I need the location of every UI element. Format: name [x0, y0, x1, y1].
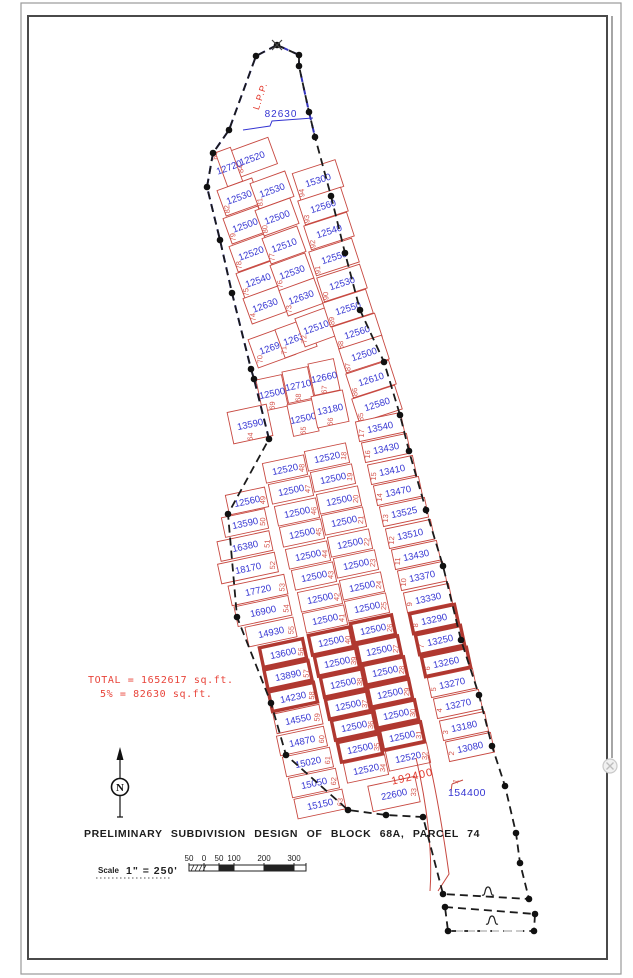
- lot-number: 92: [308, 240, 317, 249]
- lot-number: 61: [323, 756, 332, 765]
- lot-number: 71: [279, 346, 289, 355]
- lot-number: 18: [339, 451, 348, 460]
- boundary-vertex-dot: [204, 184, 211, 191]
- boundary-vertex-dot: [225, 511, 232, 518]
- boundary-vertex-dot: [445, 928, 452, 935]
- lot-number: 59: [312, 713, 321, 722]
- lot-number: 78: [234, 261, 244, 270]
- lot-number: 14: [375, 493, 384, 502]
- lot-number: 3: [441, 730, 450, 735]
- boundary-vertex-dot: [531, 928, 538, 935]
- lpp-label: L.P.P.: [251, 81, 269, 111]
- lot-number: 60: [317, 735, 326, 744]
- lot-number: 19: [345, 472, 354, 481]
- boundary-vertex-dot: [420, 814, 427, 821]
- plat-sheet: 1252084127208312530821250079125207812540…: [0, 0, 633, 978]
- boundary-vertex-dot: [217, 237, 224, 244]
- lot-number: 13: [381, 514, 390, 523]
- lot-number: 81: [255, 198, 265, 207]
- lot-number: 67: [319, 385, 328, 394]
- boundary-vertex-dot: [253, 53, 260, 60]
- scale-tick-label: 100: [227, 854, 241, 863]
- north-letter: N: [116, 782, 124, 794]
- lot-number: 46: [309, 506, 318, 515]
- lot-number: 51: [262, 539, 271, 548]
- lot-number: 76: [275, 280, 285, 289]
- lot-number: 69: [267, 401, 276, 410]
- lot-number: 89: [327, 317, 336, 326]
- lot-66: 1318066: [311, 390, 349, 429]
- lot-number: 93: [302, 215, 311, 224]
- boundary-vertex-dot: [442, 904, 449, 911]
- boundary-vertex-dot: [248, 366, 255, 373]
- lot-number: 42: [332, 592, 341, 601]
- boundary-vertex-dot: [440, 891, 447, 898]
- lot-number: 34: [378, 763, 387, 772]
- lot-number: 55: [286, 626, 295, 635]
- lot-number: 33: [409, 788, 418, 797]
- lot-number: 25: [379, 601, 388, 610]
- lot-number: 50: [258, 517, 267, 526]
- line-break-symbol: [486, 916, 498, 924]
- boundary-vertex-dot: [357, 307, 364, 314]
- boundary-vertex-dot: [296, 63, 303, 70]
- boundary-vertex-dot: [406, 448, 413, 455]
- scale-label: Scale: [98, 866, 119, 875]
- boundary-vertex-dot: [532, 911, 539, 918]
- north-arrow-icon: N: [112, 747, 129, 817]
- lot-number: 9: [405, 602, 414, 607]
- lot-number: 4: [435, 708, 444, 713]
- lot1-number: 1: [451, 778, 461, 784]
- boundary-vertex-dot: [458, 637, 465, 644]
- lot-number: 41: [337, 613, 346, 622]
- lot-number: 44: [320, 549, 329, 558]
- line-break-symbol: [482, 887, 494, 895]
- scale-tick-label: 300: [287, 854, 301, 863]
- lot-number: 49: [258, 496, 267, 505]
- lot-number: 52: [268, 561, 277, 570]
- subdivision-map: 1252084127208312530821250079125207812540…: [0, 0, 633, 978]
- lot-number: 10: [399, 578, 408, 587]
- boundary-vertex-dot: [266, 436, 273, 443]
- lot-number: 91: [313, 266, 322, 275]
- lot-number: 82: [222, 205, 232, 214]
- boundary-vertex-dot: [476, 692, 483, 699]
- lot-number: 22: [362, 537, 371, 546]
- lot-number: 73: [284, 305, 294, 314]
- lot-number: 45: [314, 527, 323, 536]
- boundary-vertex-dot: [381, 359, 388, 366]
- boundary-vertex-dot: [283, 752, 290, 759]
- lot-number: 79: [228, 233, 238, 242]
- total-area-line: TOTAL = 1652617 sq.ft.: [88, 675, 234, 686]
- total-percent-line: 5% = 82630 sq.ft.: [100, 689, 213, 700]
- page-marker-icon: [603, 759, 617, 773]
- lot-number: 24: [374, 580, 383, 589]
- boundary-vertex-dot: [502, 783, 509, 790]
- boundary-vertex-dot: [229, 290, 236, 297]
- lot-number: 11: [393, 557, 402, 565]
- boundary-vertex-dot: [513, 830, 520, 837]
- lot-number: 43: [326, 570, 335, 579]
- boundary-vertex-dot: [345, 807, 352, 814]
- scale-tick-label: 50: [215, 854, 224, 863]
- lot1-area-label: 154400: [448, 787, 486, 799]
- lot-number: 20: [351, 494, 360, 503]
- boundary-vertex-dot: [306, 109, 313, 116]
- apex-x-mark: [272, 40, 282, 50]
- scale-tick-label: 0: [202, 854, 207, 863]
- lot-number: 54: [281, 604, 290, 613]
- boundary-vertex-dot: [517, 860, 524, 867]
- scale-tick-label: 200: [257, 854, 271, 863]
- lot-number: 87: [343, 363, 352, 372]
- lot-number: 47: [303, 484, 312, 493]
- boundary-vertex-dot: [226, 127, 233, 134]
- scale-bar: 50050100200300: [185, 854, 306, 871]
- lot-number: 72: [299, 335, 309, 344]
- lot-number: 5: [429, 687, 438, 692]
- lot-number: 23: [368, 558, 377, 567]
- lot-number: 17: [357, 429, 366, 438]
- scale-tick-label: 50: [185, 854, 194, 863]
- lot-number: 94: [297, 189, 306, 198]
- boundary-vertex-dot: [312, 134, 319, 141]
- lot-number: 2: [447, 751, 456, 756]
- boundary-vertex-dot: [234, 614, 241, 621]
- lot-number: 62: [329, 777, 338, 786]
- lot-number: 65: [298, 426, 307, 435]
- lot-number: 15: [369, 472, 378, 481]
- boundary-vertex-dot: [210, 150, 217, 157]
- lot-number: 86: [350, 388, 359, 397]
- drawing-title: PRELIMINARY SUBDIVISION DESIGN OF BLOCK …: [84, 828, 480, 840]
- boundary-vertex-dot: [526, 896, 533, 903]
- boundary-vertex-dot: [397, 412, 404, 419]
- lot-number: 21: [356, 515, 365, 524]
- lot-number: 12: [387, 536, 396, 545]
- lot-number: 53: [277, 583, 286, 592]
- boundary-vertex-dot: [268, 700, 275, 707]
- lots-layer: 1252084127208312530821250079125207812540…: [208, 137, 495, 819]
- lot-number: 74: [248, 313, 258, 322]
- boundary-vertex-dot: [251, 376, 258, 383]
- boundary-vertex-dot: [296, 52, 303, 59]
- lot-number: 16: [363, 450, 372, 459]
- boundary-vertex-dot: [423, 507, 430, 514]
- lot-number: 68: [293, 393, 302, 402]
- lot-number: 77: [267, 253, 277, 262]
- lot-number: 80: [260, 225, 270, 234]
- lot-number: 70: [255, 355, 265, 364]
- boundary-vertex-dot: [328, 193, 335, 200]
- boundary-vertex-dot: [489, 743, 496, 750]
- lot-number: 48: [297, 463, 306, 472]
- lot-number: 75: [241, 288, 251, 297]
- lot-number: 64: [245, 432, 254, 441]
- boundary-vertex-dot: [383, 812, 390, 819]
- lot-number: 66: [325, 417, 334, 426]
- lot-number: 90: [321, 292, 330, 301]
- top-boundary-area-label: 82630: [265, 109, 298, 120]
- boundary-vertex-dot: [440, 563, 447, 570]
- scale-value: 1" = 250': [126, 865, 178, 877]
- boundary-vertex-dot: [342, 250, 349, 257]
